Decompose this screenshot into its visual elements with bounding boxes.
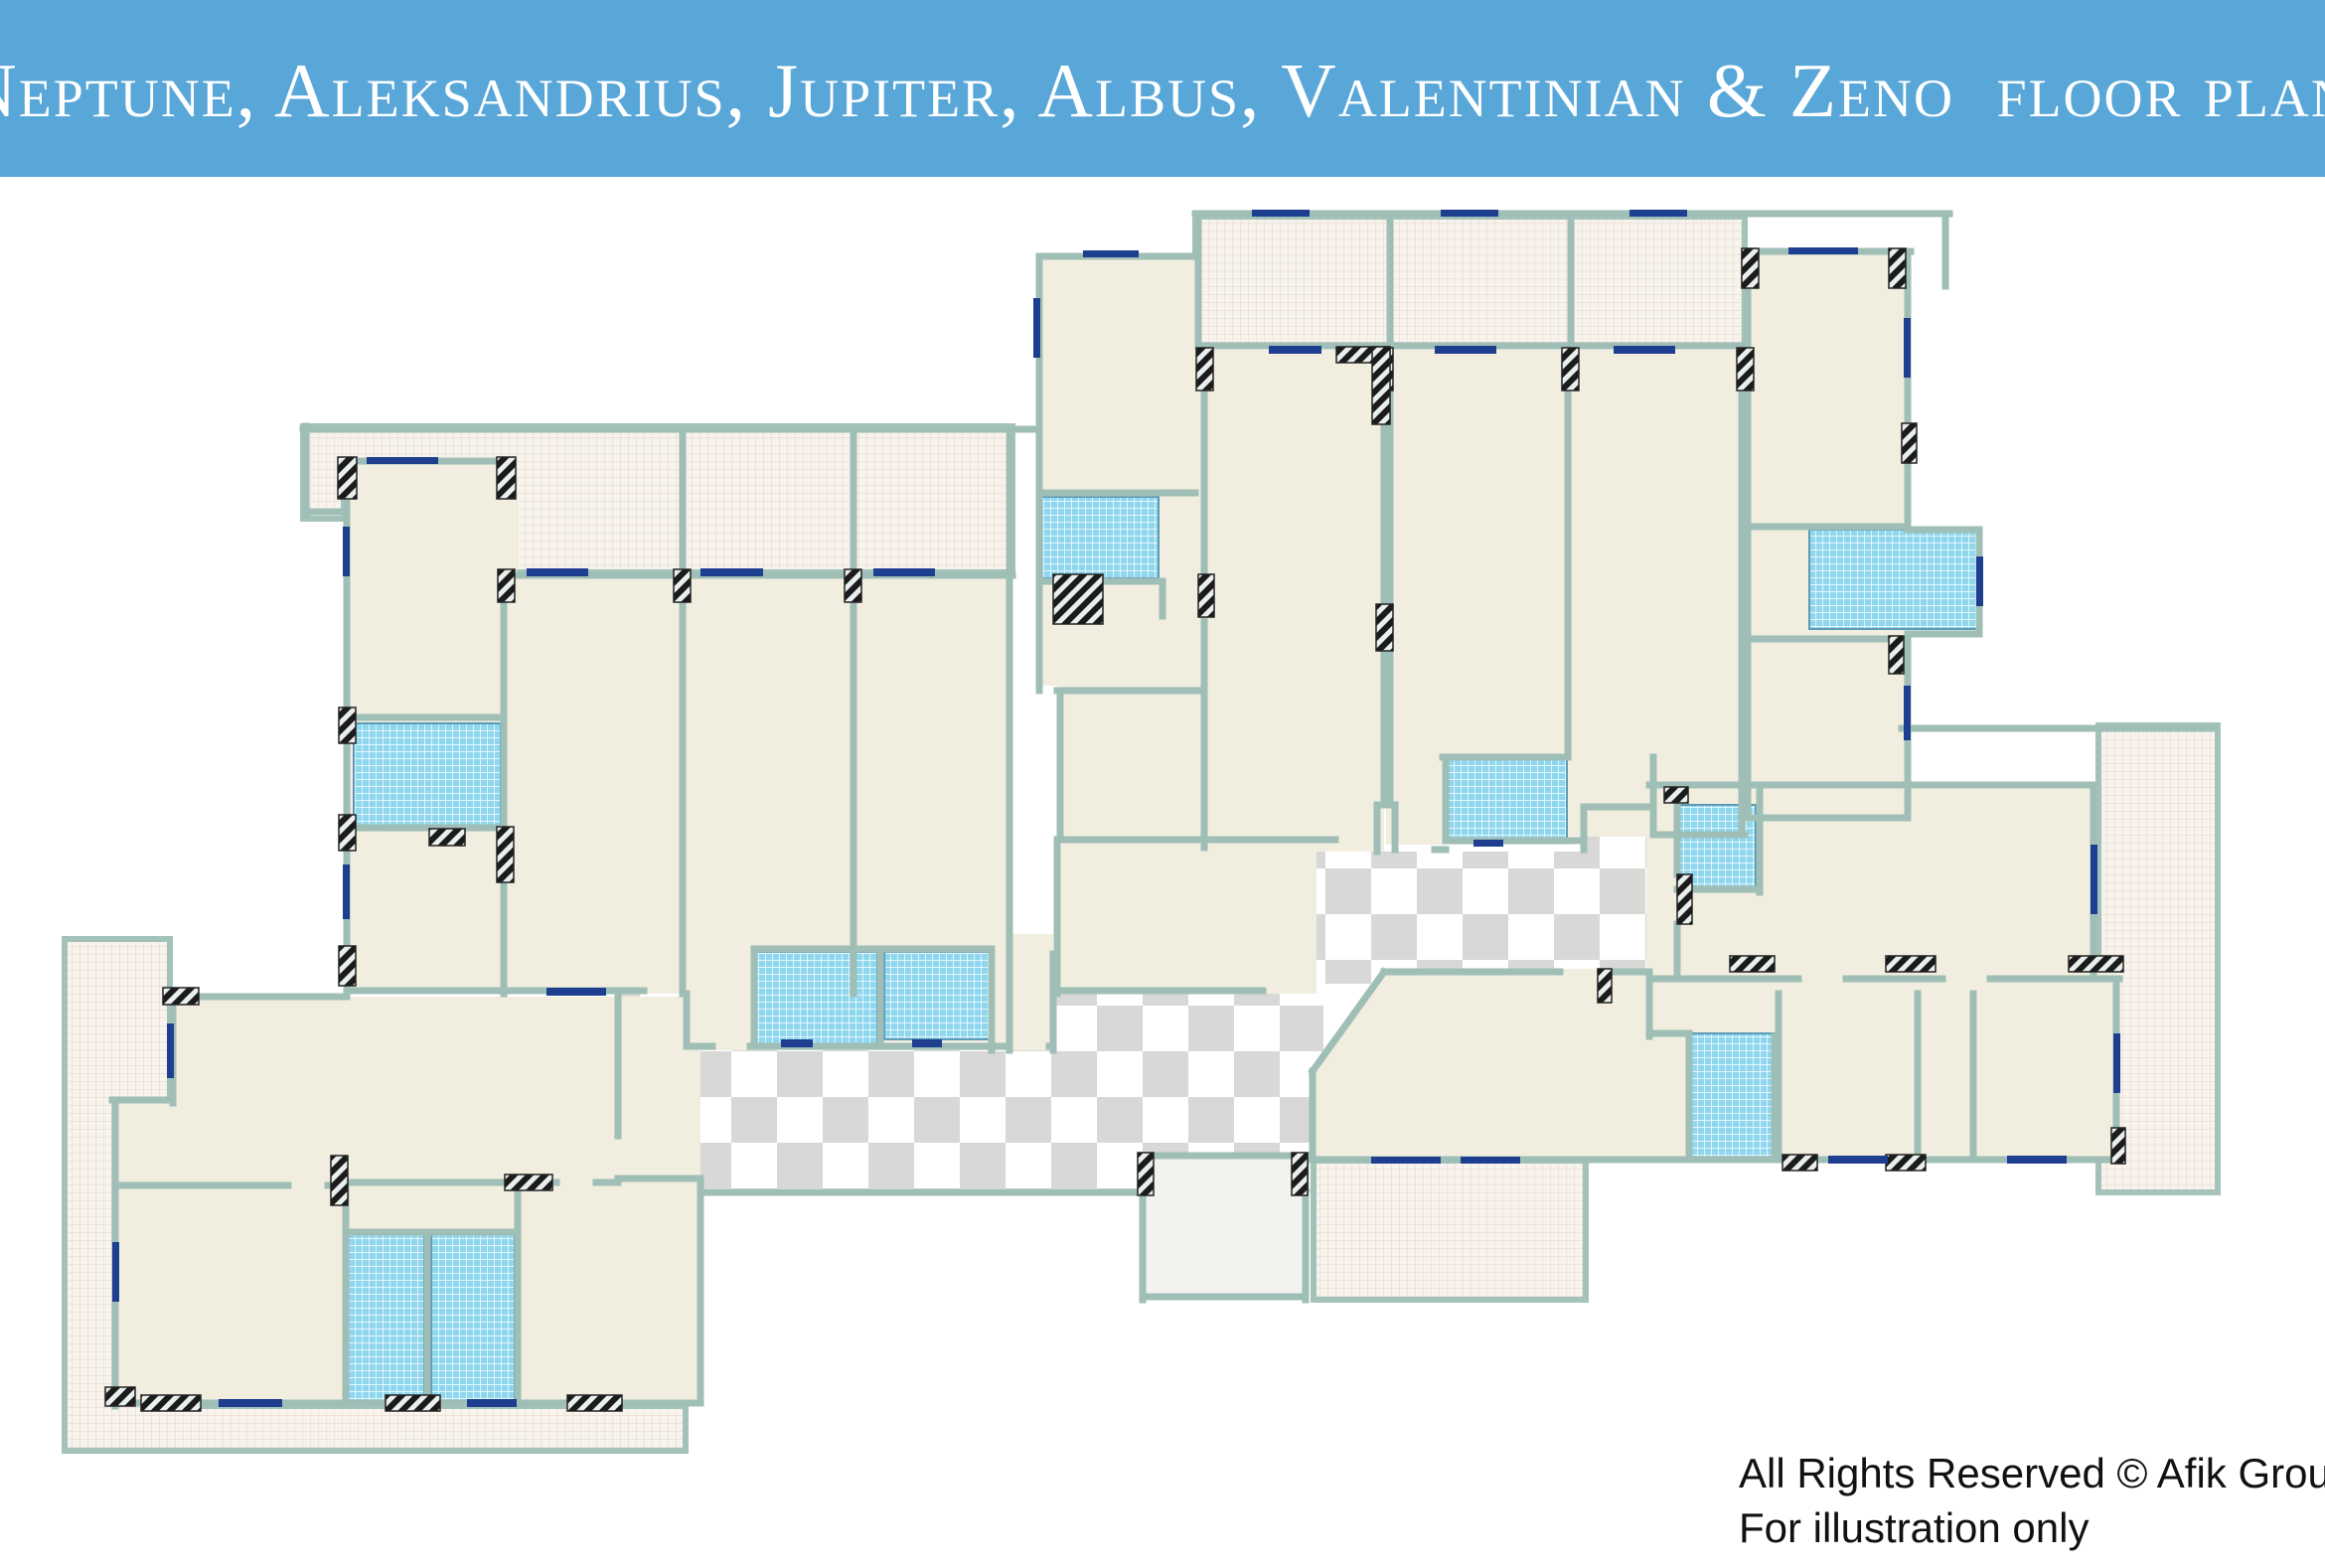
svg-text:All Rights Reserved © Afik Gro: All Rights Reserved © Afik Group	[1739, 1450, 2325, 1496]
svg-text:For illustration only: For illustration only	[1739, 1504, 2089, 1551]
svg-text:Neptune, Aleksandrius, Jupiter: Neptune, Aleksandrius, Jupiter, Albus, V…	[0, 48, 2325, 133]
